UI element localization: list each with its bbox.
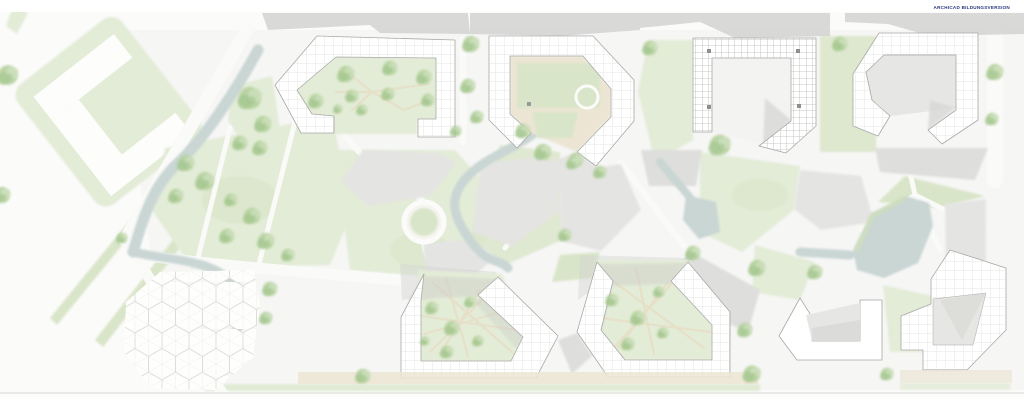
courtyard-2-marker — [527, 102, 531, 106]
courtyard-2-lawn — [532, 112, 578, 138]
sidewalk — [900, 370, 1012, 383]
canal — [800, 252, 850, 255]
watermark-text: ARCHICAD BILDUNGSVERSION — [934, 5, 1011, 10]
site-plan-page: ARCHICAD BILDUNGSVERSION — [0, 0, 1024, 405]
courtyard-2-circle-lawn — [576, 86, 598, 108]
page-margin-top — [0, 0, 1024, 12]
circular-lawn — [404, 202, 444, 242]
street-green-verge — [205, 384, 760, 391]
page-margin-bottom — [0, 398, 1024, 405]
site-plan-drawing: ARCHICAD BILDUNGSVERSION — [0, 0, 1024, 405]
street-green-verge — [900, 383, 1010, 390]
